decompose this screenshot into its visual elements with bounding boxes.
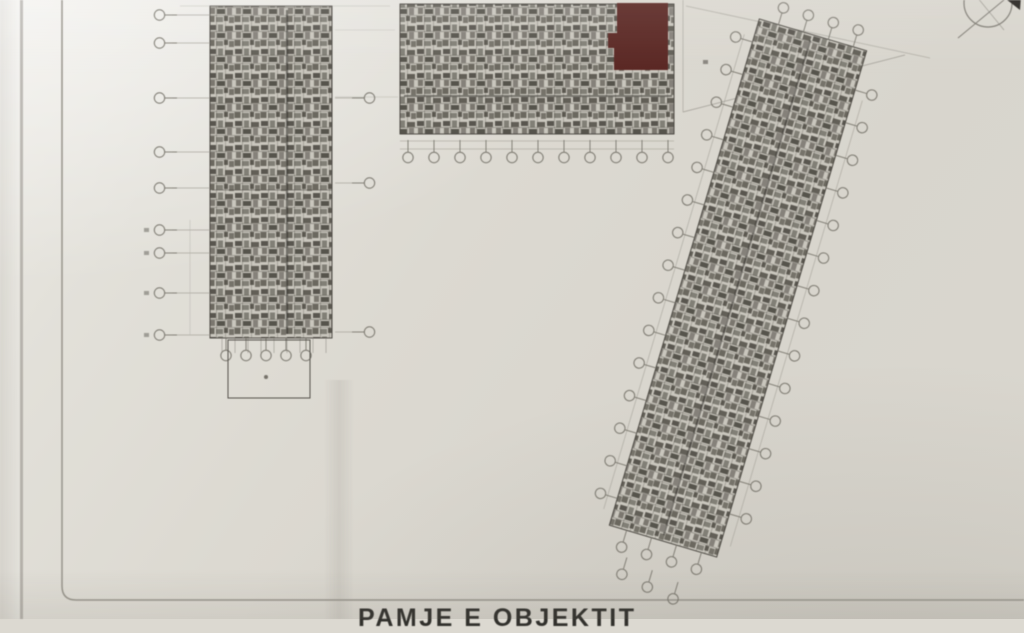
grid-bubble xyxy=(533,140,543,163)
site-plan-photo: PAMJE E OBJEKTIT xyxy=(0,0,1024,619)
wing-top-grid-bubbles xyxy=(403,140,673,163)
grid-bubble xyxy=(611,140,621,163)
wing-left-plan-mass xyxy=(210,6,332,338)
grid-bubble xyxy=(154,288,177,298)
grid-bubble xyxy=(663,140,673,163)
grid-bubble xyxy=(615,529,631,554)
grid-bubble xyxy=(261,338,271,361)
grid-bubble xyxy=(154,248,177,258)
grid-bubble xyxy=(667,581,683,606)
grid-bubble xyxy=(154,93,177,103)
wing-top-horizontal xyxy=(400,3,674,163)
grid-bubble xyxy=(507,140,517,163)
site-plan-drawing xyxy=(0,0,1024,619)
grid-bubble xyxy=(559,140,569,163)
wing-left-axis-ticks xyxy=(144,228,149,337)
grid-bubble xyxy=(281,338,291,361)
grid-bubble xyxy=(154,147,177,157)
grid-bubble xyxy=(637,140,647,163)
grid-bubble xyxy=(154,10,177,20)
grid-bubble xyxy=(455,140,465,163)
grid-bubble xyxy=(352,93,375,103)
grid-bubble xyxy=(848,24,864,49)
grid-bubble xyxy=(640,536,656,561)
grid-bubble xyxy=(154,183,177,193)
grid-bubble xyxy=(403,140,413,163)
grid-bubble xyxy=(481,140,491,163)
highlighted-unit[interactable] xyxy=(608,3,668,70)
wing-left-vertical xyxy=(144,6,398,398)
wing-left-bottom-bubbles xyxy=(221,338,311,361)
grid-bubble xyxy=(221,338,231,361)
grid-bubble xyxy=(352,178,375,188)
wing-top-dimension-lines xyxy=(400,141,674,149)
grid-bubble xyxy=(773,1,789,26)
stray-plan-mark xyxy=(703,60,708,64)
grid-bubble xyxy=(798,9,814,34)
grid-bubble xyxy=(241,338,251,361)
north-arrow-icon xyxy=(958,0,1022,38)
grid-bubble xyxy=(615,556,631,581)
grid-bubble xyxy=(352,327,375,337)
annex-outline-rect xyxy=(228,340,310,398)
grid-bubble xyxy=(154,225,177,235)
grid-bubble xyxy=(585,140,595,163)
grid-bubble xyxy=(154,38,177,48)
grid-bubble xyxy=(690,551,706,576)
grid-bubble xyxy=(429,140,439,163)
grid-bubble xyxy=(641,569,657,594)
grid-bubble xyxy=(665,544,681,569)
grid-bubble xyxy=(854,85,879,101)
annex-center-dot xyxy=(264,375,268,379)
grid-bubble xyxy=(154,330,177,340)
